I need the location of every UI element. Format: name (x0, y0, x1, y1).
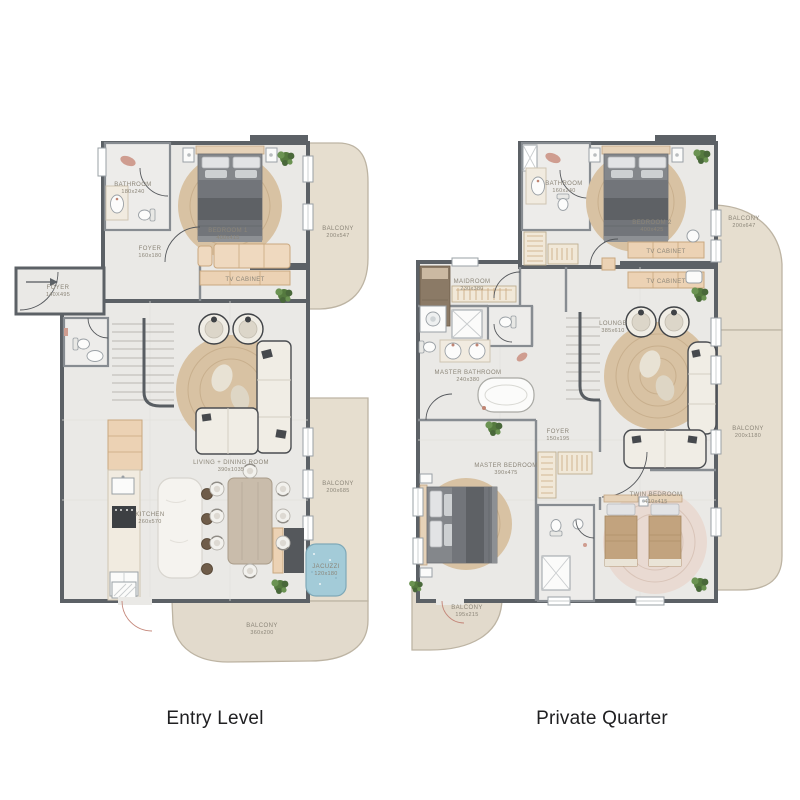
bathtub-icon (478, 378, 534, 412)
door-arc (122, 601, 152, 631)
shower-icon (542, 556, 570, 590)
room-dims: 390x475 (494, 470, 517, 476)
room-dims: 200x647 (732, 223, 755, 229)
toilet-icon (500, 316, 517, 328)
room-dims: 400x425 (640, 227, 663, 233)
room-label: BEDROOM 2 (632, 220, 672, 226)
kitchen-counter (108, 420, 142, 600)
lounge-chair-icon (659, 307, 689, 337)
window (98, 148, 106, 176)
bed-icon (420, 474, 497, 577)
towel-icon (64, 328, 68, 336)
dining-table (228, 478, 272, 564)
floor-plan-private-quarter: BATHROOM 160x240 BEDROOM 2 400x425 TV CA… (409, 135, 782, 650)
room-dims: 180x240 (121, 189, 144, 195)
lounge-chair-icon (199, 314, 229, 344)
room-dims: 260x570 (138, 519, 161, 525)
toilet-icon (557, 194, 569, 211)
room-label: MASTER BATHROOM (435, 370, 502, 376)
room-label: TV CABINET (646, 279, 685, 285)
dining-chair-icon (243, 464, 257, 478)
lounge-chair-icon (233, 314, 263, 344)
room-label: FOYER (547, 429, 570, 435)
floor-plan-entry-level: BATHROOM 180x240 FOYER 160x180 BEDROOM 1… (16, 135, 368, 662)
jacuzzi-icon (306, 544, 346, 596)
door-opening (436, 597, 464, 605)
plant-icon (409, 581, 423, 593)
balcony-side-long (716, 330, 782, 590)
toilet-icon (73, 338, 90, 350)
room-dims: 230x380 (460, 286, 483, 292)
column (602, 258, 615, 270)
room-label: BALCONY (322, 226, 353, 232)
shower-icon (452, 310, 482, 338)
media-console (273, 528, 304, 573)
room-dims: 195x215 (455, 612, 478, 618)
room-label: KITCHEN (135, 512, 164, 518)
room-label: BALCONY (732, 426, 763, 432)
twin-bed-icon (604, 495, 638, 566)
wall-beam (250, 135, 308, 143)
bench-sofa (198, 244, 290, 268)
window (452, 258, 478, 266)
room-dims: 200x1180 (735, 433, 761, 439)
window-panel (523, 145, 537, 171)
room-label: LOUNGE (599, 321, 627, 327)
dining-chair-icon (276, 482, 290, 496)
wall-beam (655, 135, 716, 143)
plan-title-private-quarter: Private Quarter (452, 708, 752, 730)
room-dims: 150x195 (546, 436, 569, 442)
room-label: TV CABINET (225, 277, 264, 283)
dining-chair-icon (210, 482, 224, 496)
dining-chair-icon (276, 509, 290, 523)
room-label: LIVING + DINING ROOM (193, 460, 269, 466)
room-dims: 410x415 (644, 499, 667, 505)
basin-icon (111, 195, 124, 213)
dining-chair-icon (210, 536, 224, 550)
floorplan-canvas: BATHROOM 180x240 FOYER 160x180 BEDROOM 1… (0, 0, 800, 800)
dining-chair-icon (210, 509, 224, 523)
room-label: FOYER (139, 246, 162, 252)
basin-icon (532, 177, 545, 195)
room-dims: 390x1035 (218, 467, 245, 473)
wall-segment (620, 261, 716, 267)
room-label: TWIN BEDROOM (630, 492, 683, 498)
room-dims: 400x415 (216, 235, 239, 241)
room-label: BATHROOM (114, 182, 151, 188)
room-label: FOYER (47, 285, 70, 291)
toilet-icon (550, 520, 562, 537)
dining-chair-icon (276, 536, 290, 550)
door-opening (118, 597, 152, 605)
towel-icon (583, 543, 587, 547)
room-dims: 240x380 (456, 377, 479, 383)
double-vanity (440, 340, 490, 362)
room-label: BALCONY (322, 481, 353, 487)
seat-pad (686, 271, 702, 283)
room-label: BALCONY (246, 623, 277, 629)
room-label: BATHROOM (545, 181, 582, 187)
room-label: JACUZZI (312, 564, 339, 570)
sofa-icon (624, 430, 706, 468)
stool-icon (202, 564, 213, 575)
room-dims: 120x180 (314, 571, 337, 577)
room-label: BEDROOM 1 (208, 228, 248, 234)
entry-mat (112, 582, 136, 598)
room-dims: 160x180 (138, 253, 161, 259)
room-label: MASTER BEDROOM (474, 463, 537, 469)
wc-room (488, 306, 532, 346)
entry-corridor (16, 268, 104, 314)
room-dims: 160x240 (552, 188, 575, 194)
chair-icon (687, 230, 699, 242)
room-label: BALCONY (451, 605, 482, 611)
kitchen-island (158, 478, 202, 578)
washer-icon (420, 306, 446, 332)
room-label: BALCONY (728, 216, 759, 222)
room-dims: 140X495 (46, 292, 70, 298)
room-dims: 200x547 (326, 233, 349, 239)
lounge-chair-icon (626, 307, 656, 337)
toilet-icon (419, 341, 436, 353)
dining-chair-icon (243, 564, 257, 578)
room-dims: 385x610 (601, 328, 624, 334)
twin-bed-icon (648, 495, 682, 566)
room-label: MAIDROOM (454, 279, 491, 285)
room-label: TV CABINET (646, 249, 685, 255)
toilet-icon (139, 209, 156, 221)
room-dims: 360x200 (250, 630, 273, 636)
basin-icon (87, 351, 103, 362)
plan-title-entry-level: Entry Level (65, 708, 365, 730)
room-dims: 200x685 (326, 488, 349, 494)
floorplan-drawing: BATHROOM 180x240 FOYER 160x180 BEDROOM 1… (0, 0, 800, 800)
